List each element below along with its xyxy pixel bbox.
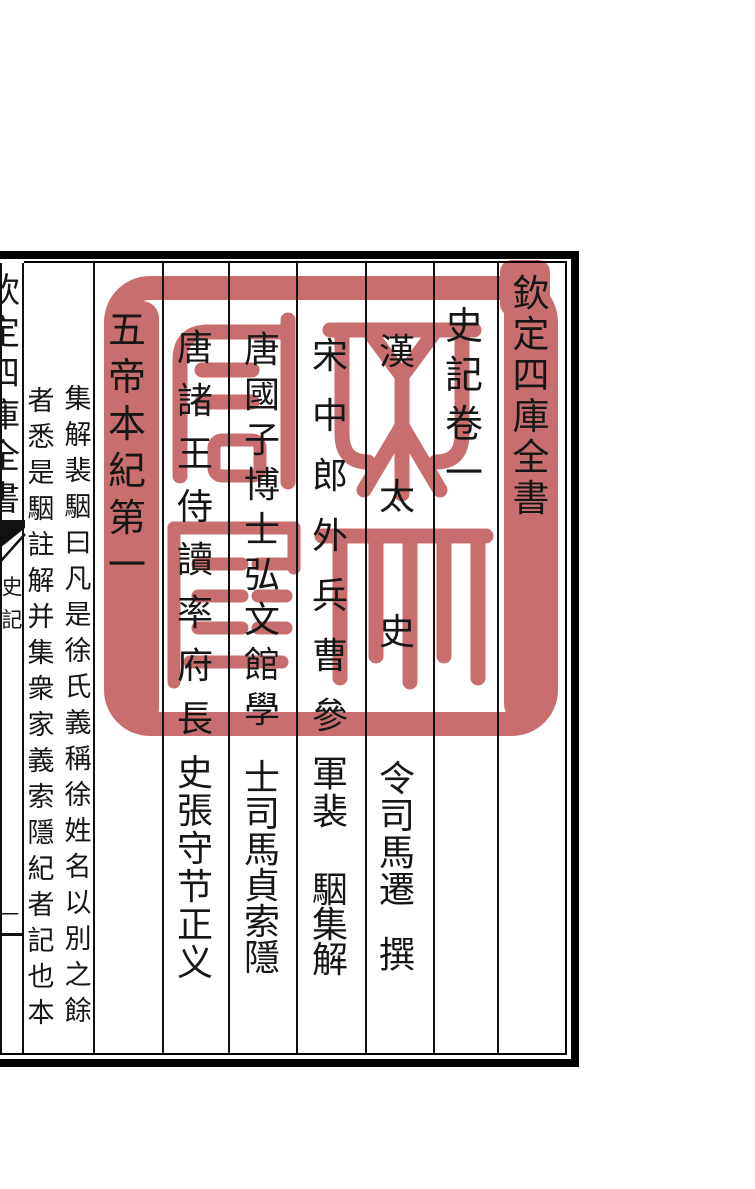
suoyin-commentator-column-glyph: 隱 [244, 940, 280, 976]
zhengyi-commentator-column-glyph: 正 [177, 907, 213, 943]
jijie-commentator-column-glyph: 郎 [312, 458, 348, 494]
suoyin-commentator-column-glyph: 弘 [244, 557, 280, 593]
annotation-sub-right-glyph: 曰 [65, 530, 92, 557]
annotation-sub-right-glyph: 名 [65, 854, 92, 881]
annotation-sub-right-glyph: 餘 [65, 998, 92, 1025]
banxin-page-number-glyph: 一 [1, 906, 19, 924]
zhengyi-commentator-column-glyph: 守 [177, 831, 213, 867]
annotation-sub-right-glyph: 駰 [65, 494, 92, 521]
jijie-commentator-column-glyph: 曹 [312, 638, 348, 674]
author-column-glyph: 遷 [379, 872, 415, 908]
chapter-title-column-glyph: 帝 [108, 359, 146, 397]
chapter-column-glyph: 記 [445, 357, 483, 395]
banxin-book-title-glyph: 史 [2, 577, 23, 598]
author-column-glyph: 馬 [379, 835, 415, 871]
zhengyi-commentator-column-glyph: 府 [177, 648, 213, 684]
suoyin-commentator-column-glyph: 博 [244, 467, 280, 503]
jijie-commentator-column-glyph: 兵 [312, 578, 348, 614]
annotation-sub-right-glyph: 氏 [65, 674, 92, 701]
annotation-sub-left-glyph: 并 [28, 604, 55, 631]
book-page: 欽定四庫全書史記卷一漢太史令司馬遷撰宋中郎外兵曹參軍裴駰集解唐國子博士弘文館學士… [0, 0, 755, 1189]
chapter-column-glyph: 史 [445, 308, 483, 346]
annotation-sub-right-glyph: 是 [65, 602, 92, 629]
title-column-glyph: 欽 [513, 276, 550, 313]
jijie-commentator-column-glyph: 中 [312, 398, 348, 434]
banxin-series-title-glyph: 庫 [0, 400, 20, 434]
zhengyi-commentator-column-glyph: 諸 [177, 383, 213, 419]
banxin-book-title-glyph: 記 [2, 610, 23, 631]
annotation-sub-left-glyph: 集 [28, 640, 55, 667]
zhengyi-commentator-column-glyph: 張 [177, 793, 213, 829]
annotation-sub-right-glyph: 稱 [65, 746, 92, 773]
annotation-sub-left-glyph: 衆 [28, 676, 55, 703]
annotation-sub-right-glyph: 徐 [65, 638, 92, 665]
chapter-title-column-glyph: 第 [108, 500, 146, 538]
banxin-series-title-glyph: 欽 [0, 275, 20, 309]
jijie-commentator-column-glyph: 宋 [312, 338, 348, 374]
jijie-commentator-column-glyph: 解 [312, 942, 348, 978]
annotation-sub-left-glyph: 索 [28, 784, 55, 811]
author-column-glyph: 史 [379, 614, 415, 650]
annotation-sub-left-glyph: 註 [28, 532, 55, 559]
annotation-sub-right-glyph: 凡 [65, 566, 92, 593]
suoyin-commentator-column-glyph: 士 [244, 512, 280, 548]
annotation-sub-left-glyph: 紀 [28, 856, 55, 883]
annotation-sub-left-glyph: 也 [28, 964, 55, 991]
zhengyi-commentator-column-glyph: 义 [177, 945, 213, 981]
zhengyi-commentator-column-glyph: 侍 [177, 489, 213, 525]
title-column-glyph: 全 [513, 440, 550, 477]
suoyin-commentator-column-glyph: 貞 [244, 868, 280, 904]
annotation-sub-left-glyph: 隱 [28, 820, 55, 847]
annotation-sub-right-glyph: 姓 [65, 818, 92, 845]
suoyin-commentator-column-glyph: 馬 [244, 832, 280, 868]
annotation-sub-right-glyph: 義 [65, 710, 92, 737]
banxin-series-title-glyph: 定 [0, 317, 20, 351]
annotation-sub-left-glyph: 本 [28, 1000, 55, 1027]
author-column-glyph: 撰 [379, 937, 415, 973]
chapter-title-column-glyph: 五 [108, 312, 146, 350]
annotation-sub-left-glyph: 者 [28, 892, 55, 919]
jijie-commentator-column-glyph: 駰 [312, 872, 348, 908]
suoyin-commentator-column-glyph: 國 [244, 377, 280, 413]
annotation-sub-left-glyph: 解 [28, 568, 55, 595]
author-column-glyph: 司 [379, 798, 415, 834]
chapter-title-column-glyph: 紀 [108, 453, 146, 491]
chapter-column-glyph: 一 [445, 455, 483, 493]
zhengyi-commentator-column-glyph: 率 [177, 595, 213, 631]
annotation-sub-left-glyph: 是 [28, 460, 55, 487]
suoyin-commentator-column-glyph: 索 [244, 904, 280, 940]
annotation-sub-left-glyph: 記 [28, 928, 55, 955]
suoyin-commentator-column-glyph: 館 [244, 647, 280, 683]
zhengyi-commentator-column-glyph: 長 [177, 701, 213, 737]
banxin-series-title-glyph: 書 [0, 483, 20, 517]
annotation-sub-right-glyph: 徐 [65, 782, 92, 809]
suoyin-commentator-column-glyph: 子 [244, 422, 280, 458]
banxin-series-title-glyph: 四 [0, 358, 20, 392]
zhengyi-commentator-column-glyph: 讀 [177, 542, 213, 578]
zhengyi-commentator-column-glyph: 王 [177, 436, 213, 472]
suoyin-commentator-column-glyph: 唐 [244, 332, 280, 368]
jijie-commentator-column-glyph: 裴 [312, 794, 348, 830]
annotation-sub-right-glyph: 以 [65, 890, 92, 917]
jijie-commentator-column-glyph: 外 [312, 518, 348, 554]
banxin-series-title-glyph: 全 [0, 441, 20, 475]
jijie-commentator-column-glyph: 軍 [312, 756, 348, 792]
zhengyi-commentator-column-glyph: 唐 [177, 330, 213, 366]
title-column-glyph: 四 [513, 358, 550, 395]
author-column-glyph: 漢 [379, 334, 415, 370]
text-layer: 欽定四庫全書史記卷一漢太史令司馬遷撰宋中郎外兵曹參軍裴駰集解唐國子博士弘文館學士… [0, 0, 755, 1189]
zhengyi-commentator-column-glyph: 史 [177, 755, 213, 791]
title-column-glyph: 書 [513, 481, 550, 518]
annotation-sub-right-glyph: 別 [65, 926, 92, 953]
jijie-commentator-column-glyph: 參 [312, 698, 348, 734]
chapter-title-column-glyph: 本 [108, 406, 146, 444]
annotation-sub-left-glyph: 者 [28, 388, 55, 415]
title-column-glyph: 庫 [513, 399, 550, 436]
suoyin-commentator-column-glyph: 司 [244, 796, 280, 832]
annotation-sub-left-glyph: 家 [28, 712, 55, 739]
annotation-sub-right-glyph: 裴 [65, 458, 92, 485]
annotation-sub-left-glyph: 駰 [28, 496, 55, 523]
suoyin-commentator-column-glyph: 學 [244, 692, 280, 728]
chapter-column-glyph: 卷 [445, 406, 483, 444]
author-column-glyph: 令 [379, 761, 415, 797]
suoyin-commentator-column-glyph: 文 [244, 602, 280, 638]
annotation-sub-right-glyph: 之 [65, 962, 92, 989]
annotation-sub-right-glyph: 集 [65, 386, 92, 413]
annotation-sub-left-glyph: 悉 [28, 424, 55, 451]
zhengyi-commentator-column-glyph: 节 [177, 869, 213, 905]
author-column-glyph: 太 [379, 479, 415, 515]
annotation-sub-right-glyph: 解 [65, 422, 92, 449]
suoyin-commentator-column-glyph: 士 [244, 760, 280, 796]
title-column-glyph: 定 [513, 317, 550, 354]
chapter-title-column-glyph: 一 [108, 547, 146, 585]
annotation-sub-left-glyph: 義 [28, 748, 55, 775]
jijie-commentator-column-glyph: 集 [312, 907, 348, 943]
